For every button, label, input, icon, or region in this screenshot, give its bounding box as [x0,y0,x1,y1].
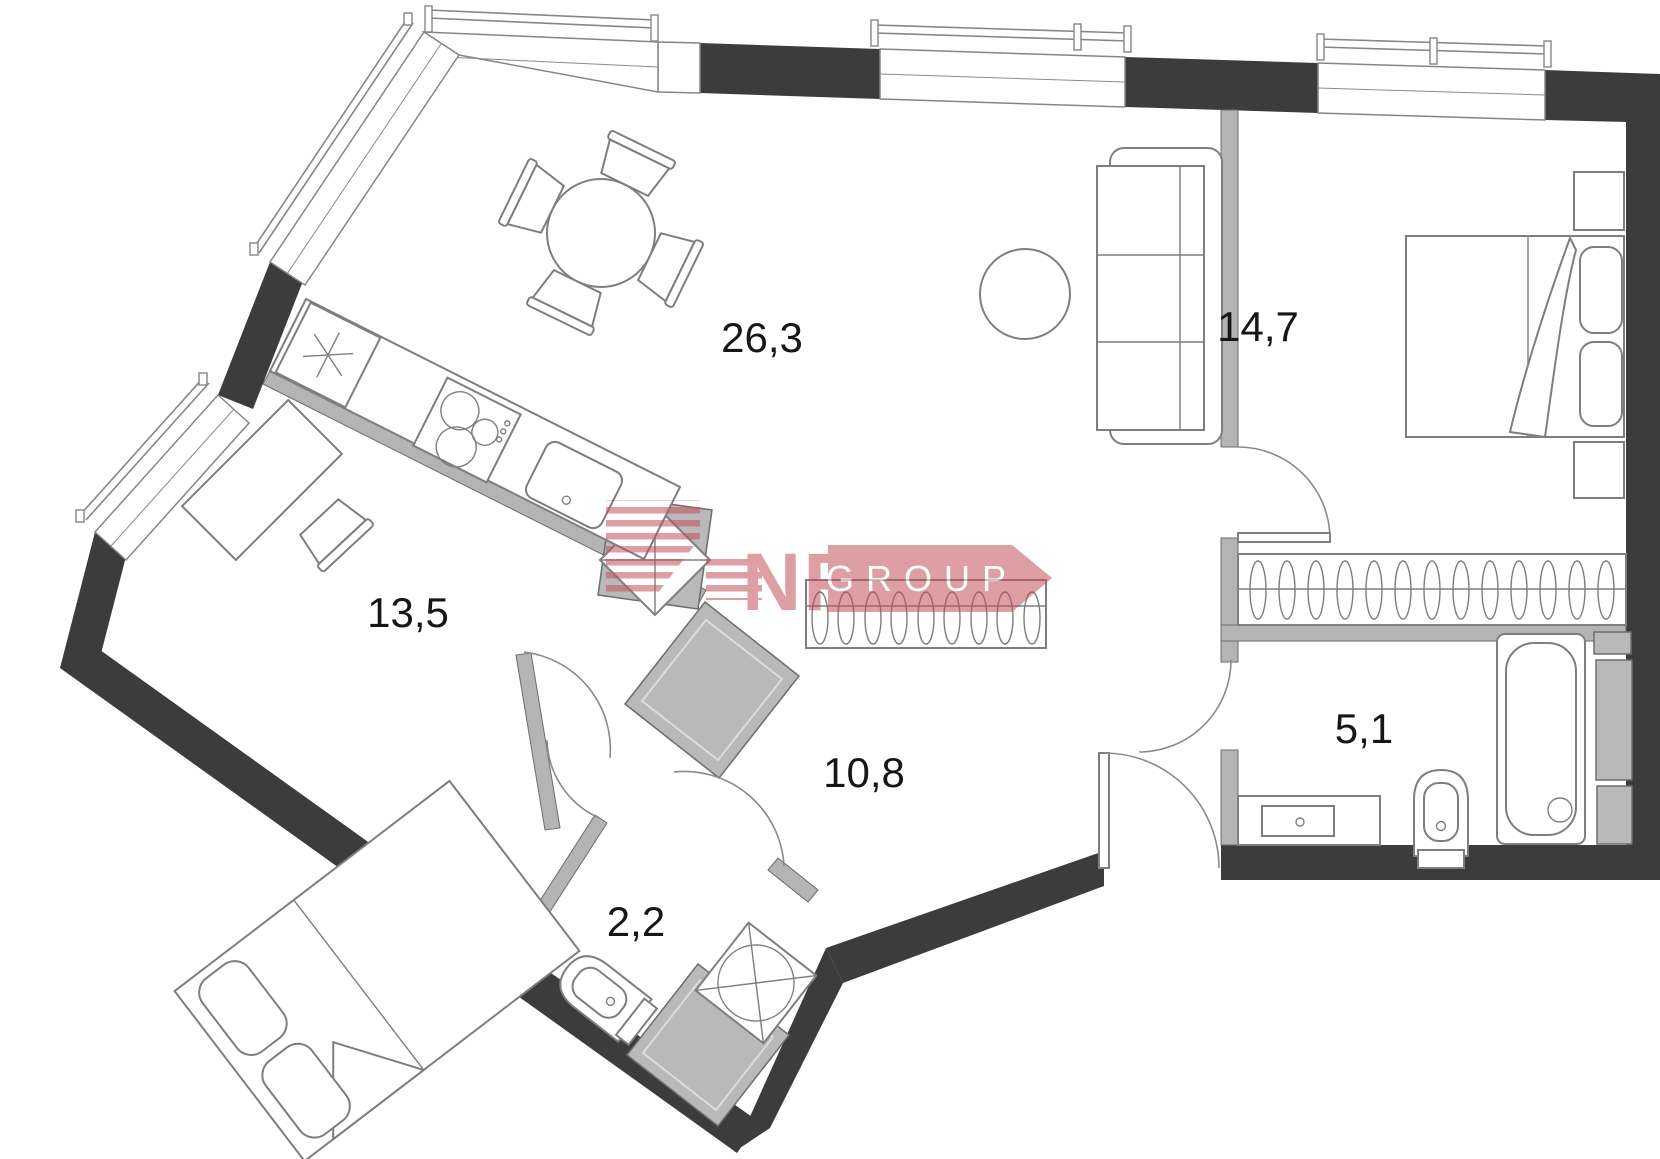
logo-banner-text: GROUP [826,558,1018,599]
room-label-wc: 2,2 [607,898,665,945]
door-arc-vestibule [674,771,784,866]
door-leaf-entry [1099,753,1109,868]
door-leaf-bedroom [1238,533,1330,542]
nightstand [1574,172,1624,230]
wardrobe-bedroom [1238,554,1626,625]
coffee-table [980,249,1070,339]
room-label-bathroom: 5,1 [1335,705,1393,752]
room-label-hallway: 10,8 [823,749,905,796]
watermark-logo: NF GROUP [606,500,1052,628]
sofa [1097,148,1222,444]
nightstand [1574,442,1624,498]
dining-table [498,130,704,336]
door-arc-entry [1104,753,1219,868]
bathroom-vanity [1238,796,1380,845]
room-label-bedroom: 14,7 [1217,303,1299,350]
bed-double [1406,236,1624,437]
door-arc-bathroom [1139,660,1231,752]
desk-chair [294,493,375,572]
room-label-bedroom-second: 13,5 [367,589,449,636]
bathtub [1497,634,1585,844]
room-label-living: 26,3 [721,314,803,361]
floor-plan: NF GROUP 26,3 14,7 13,5 10,8 5,1 2,2 [0,0,1660,1159]
toilet [1414,770,1468,868]
bed-second [175,781,580,1159]
door-arc-bedroom [1238,447,1330,539]
